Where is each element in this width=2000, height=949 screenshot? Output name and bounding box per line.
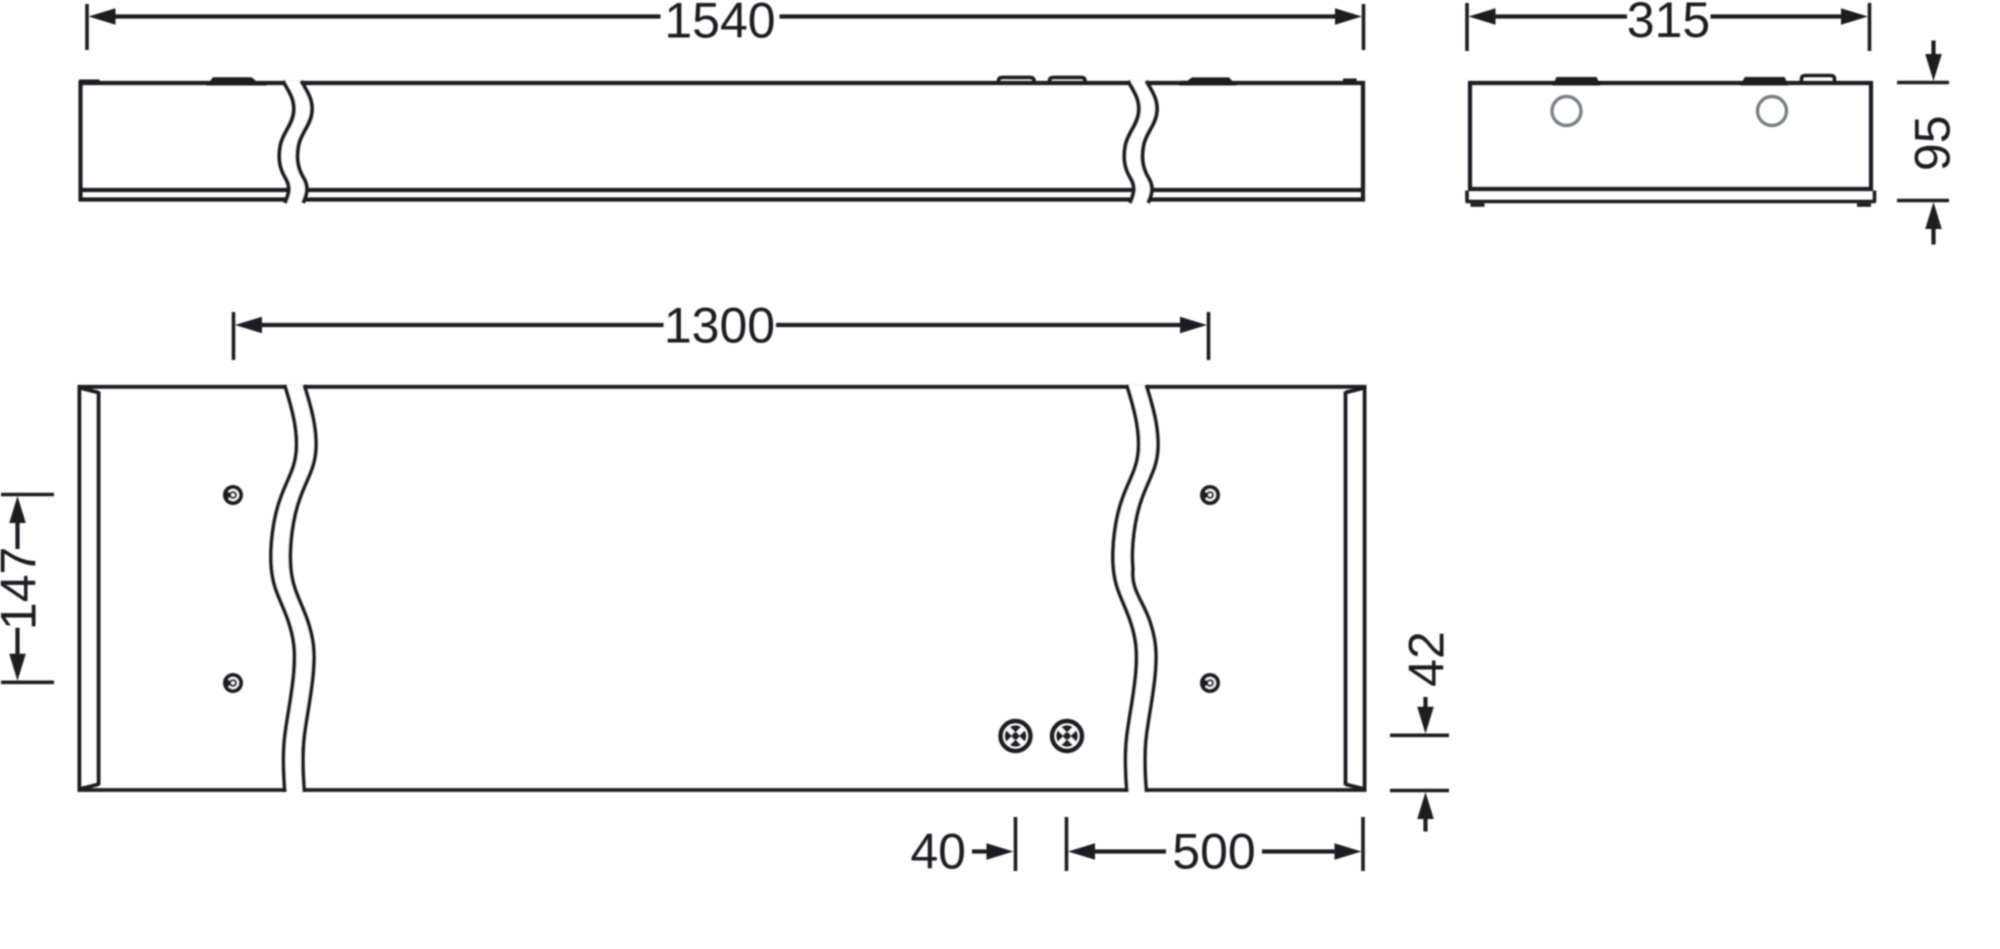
svg-text:95: 95 xyxy=(1905,115,1961,171)
svg-text:1540: 1540 xyxy=(664,0,775,48)
svg-text:42: 42 xyxy=(1398,631,1454,687)
svg-text:315: 315 xyxy=(1627,0,1710,48)
svg-text:147: 147 xyxy=(0,547,46,630)
svg-text:500: 500 xyxy=(1172,823,1255,879)
svg-text:40: 40 xyxy=(910,823,966,879)
svg-text:1300: 1300 xyxy=(664,297,775,353)
